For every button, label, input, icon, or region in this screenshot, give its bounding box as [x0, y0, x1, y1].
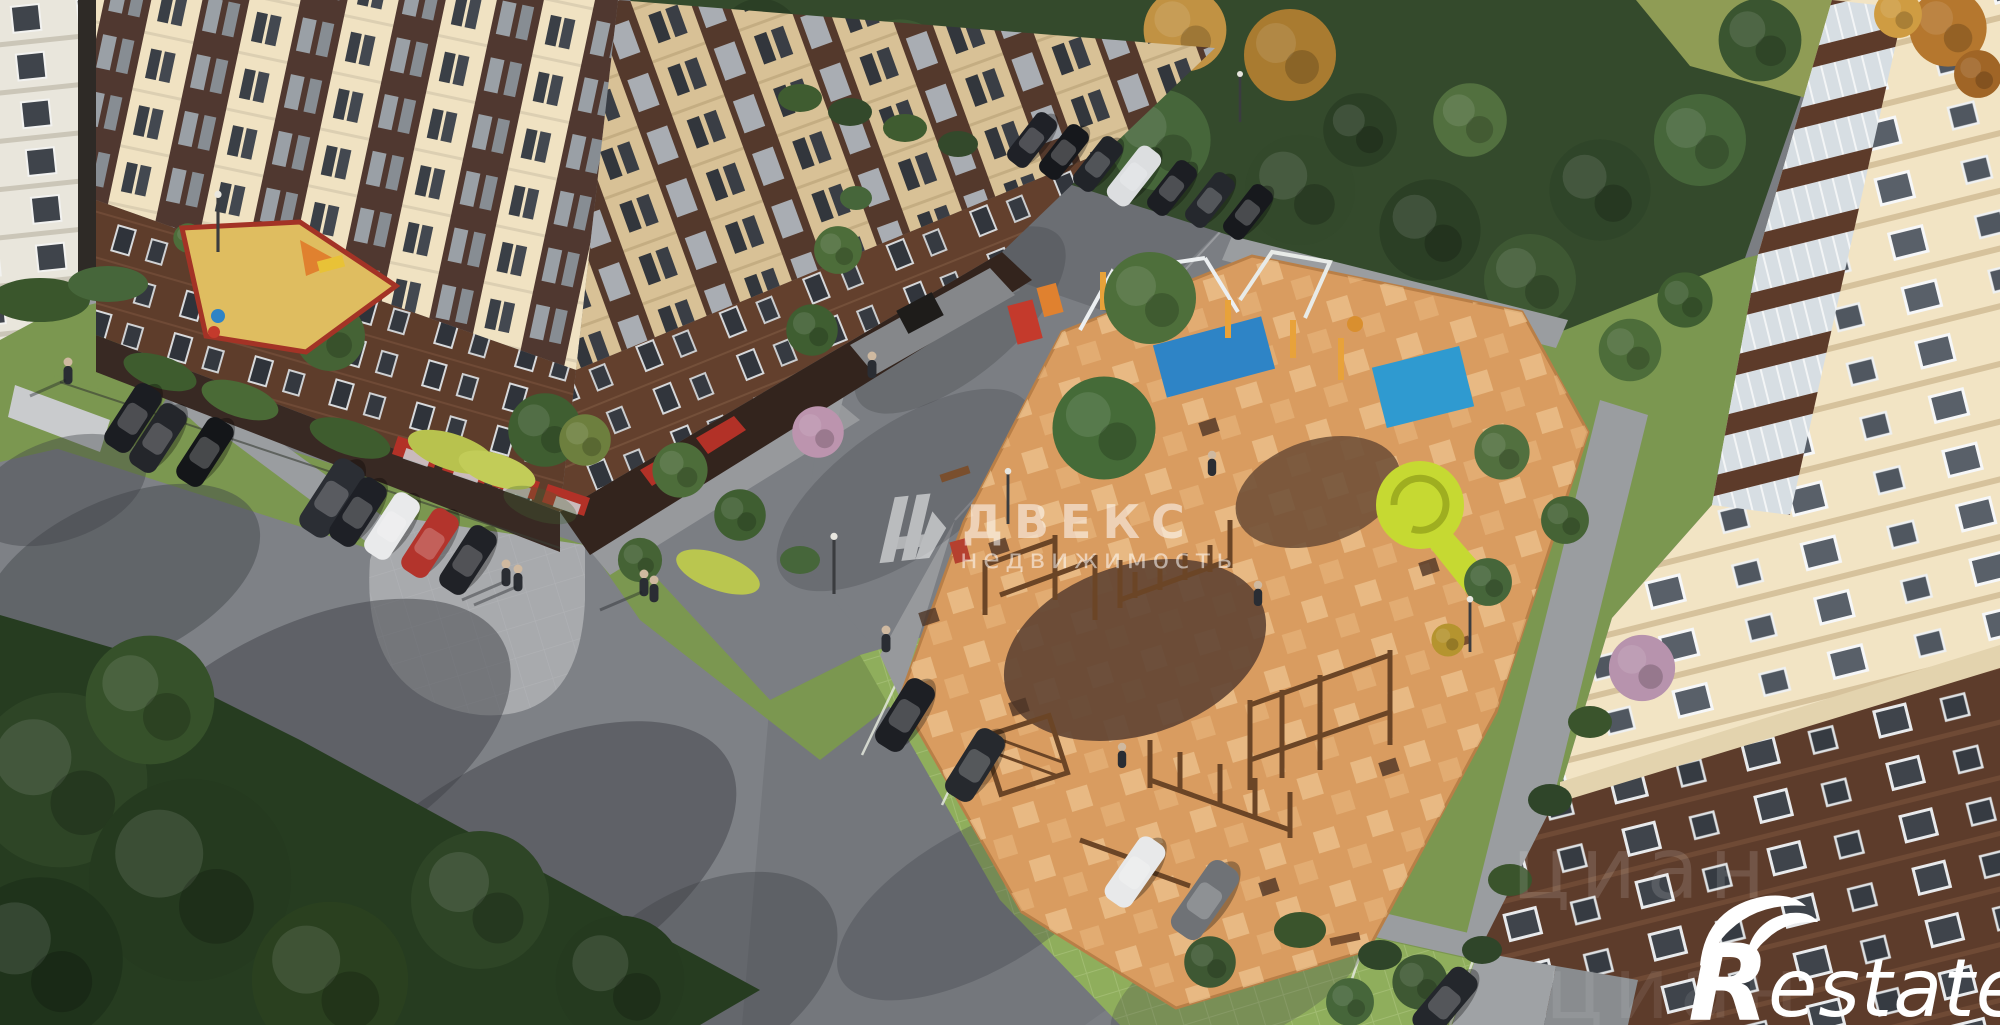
cian-watermark-text: циан — [1512, 819, 1775, 919]
play-dome-blue — [211, 309, 225, 323]
play-dome-red — [208, 326, 220, 338]
restate-logo-r: R — [1688, 922, 1770, 1025]
restate-logo-word: estate — [1768, 942, 2000, 1025]
playground-tree — [1104, 252, 1196, 344]
render-canvas: циан циан ДВЕКС недвижимость R estate — [0, 0, 2000, 1025]
advex-watermark-line1: ДВЕКС — [962, 495, 1196, 549]
aerial-residential-render: циан циан ДВЕКС недвижимость R estate — [0, 0, 2000, 1025]
advex-watermark-line2: недвижимость — [960, 544, 1238, 575]
